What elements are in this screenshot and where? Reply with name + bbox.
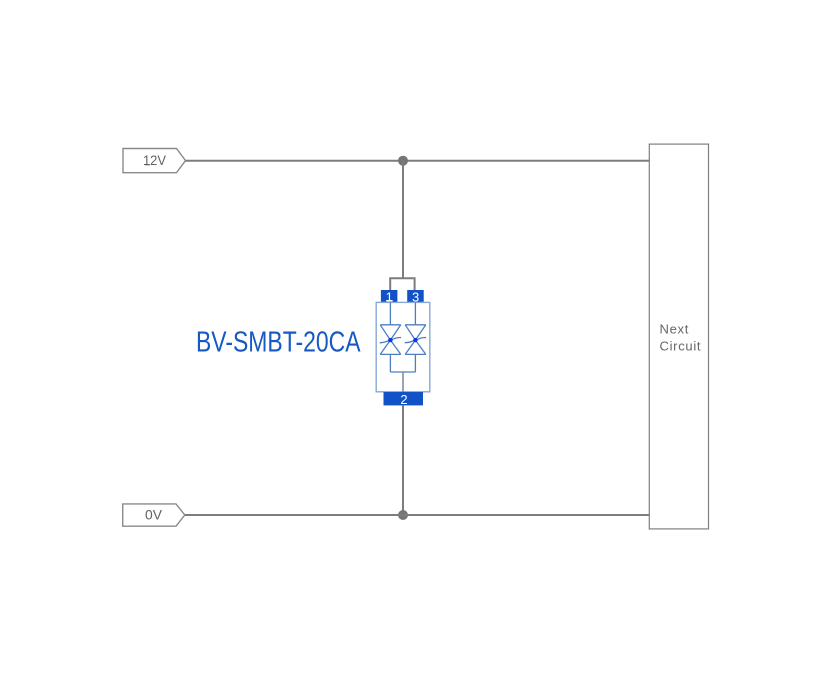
svg-text:0V: 0V	[145, 508, 162, 523]
svg-text:12V: 12V	[143, 153, 166, 168]
svg-text:Next: Next	[660, 322, 690, 337]
svg-text:BV-SMBT-20CA: BV-SMBT-20CA	[196, 327, 361, 359]
svg-text:Circuit: Circuit	[660, 338, 702, 353]
svg-text:2: 2	[400, 392, 407, 407]
